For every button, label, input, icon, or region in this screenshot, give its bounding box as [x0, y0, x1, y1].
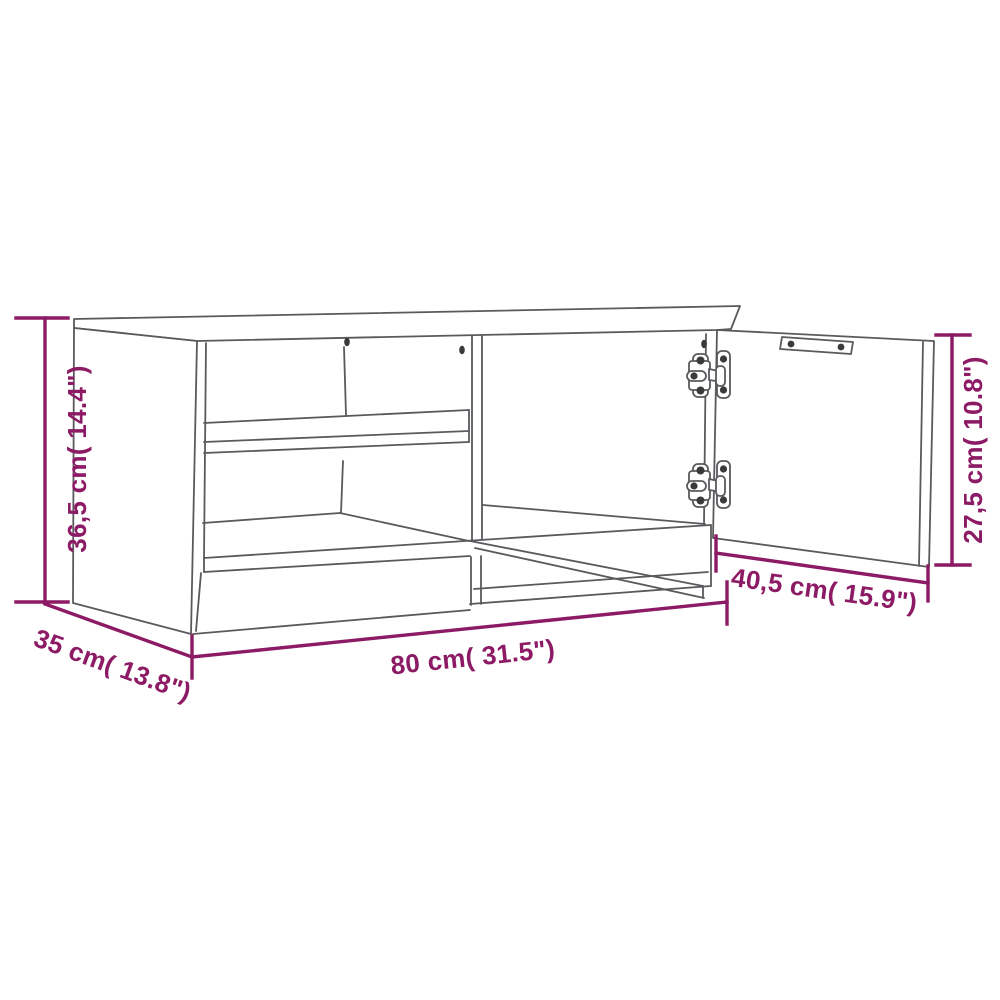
open-door — [713, 330, 934, 567]
screw-hole — [459, 346, 465, 354]
top-panel — [74, 306, 740, 341]
back-corner-edge — [341, 347, 346, 513]
center-divider — [471, 336, 482, 605]
door-height-label: 27,5 cm( 10.8") — [958, 356, 988, 543]
dim-overall-width: 80 cm( 31.5") — [192, 582, 727, 680]
overall-depth-label: 35 cm( 13.8") — [30, 623, 195, 708]
door-panel — [713, 330, 934, 567]
bottom-shelf — [203, 513, 469, 541]
middle-shelf — [204, 410, 469, 453]
screw — [788, 341, 795, 348]
door-hinge-bottom — [687, 461, 730, 508]
screw — [838, 344, 845, 351]
door-width-label: 40,5 cm( 15.9") — [729, 562, 919, 618]
diagram-canvas: 36,5 cm( 14.4") 80 cm( 31.5") 35 cm( 13.… — [0, 0, 1000, 1000]
screw-hole — [344, 338, 350, 346]
left-stile-edge — [204, 343, 206, 558]
door-hinge-top — [687, 351, 730, 398]
dim-door-height: 27,5 cm( 10.8") — [936, 335, 988, 565]
overall-width-label: 80 cm( 31.5") — [389, 633, 556, 680]
screw-hole — [701, 340, 707, 348]
overall-height-label: 36,5 cm( 14.4") — [62, 365, 92, 552]
base-plinth — [193, 541, 711, 634]
door-compartment-floor — [483, 505, 705, 524]
furniture-dimension-diagram: 36,5 cm( 14.4") 80 cm( 31.5") 35 cm( 13.… — [0, 0, 1000, 1000]
